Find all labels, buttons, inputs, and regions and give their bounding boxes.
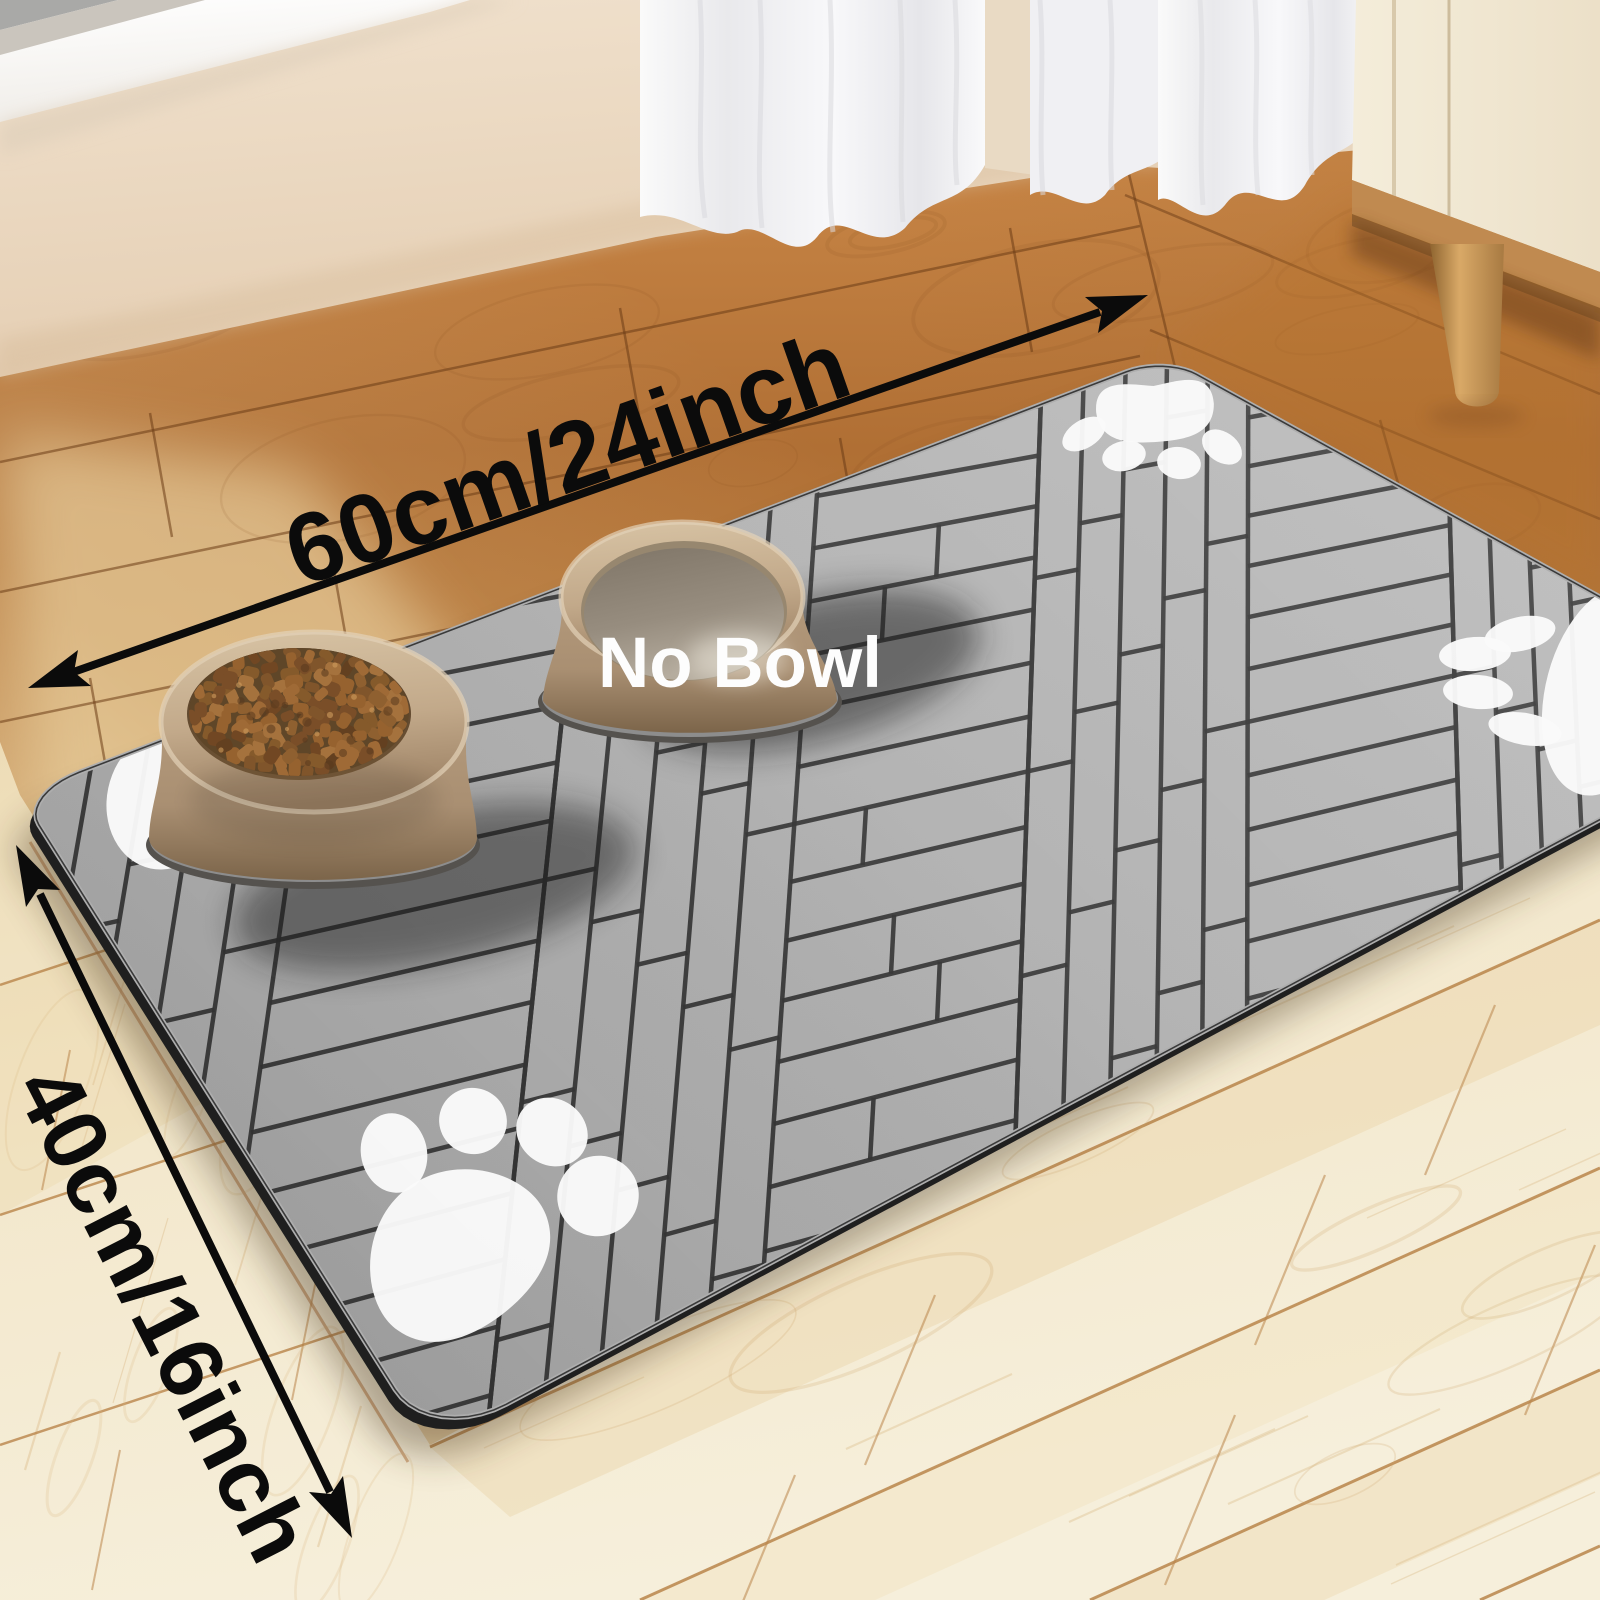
svg-text:No Bowl: No Bowl — [598, 624, 882, 703]
svg-text:40cm/16inch: 40cm/16inch — [0, 1051, 330, 1578]
